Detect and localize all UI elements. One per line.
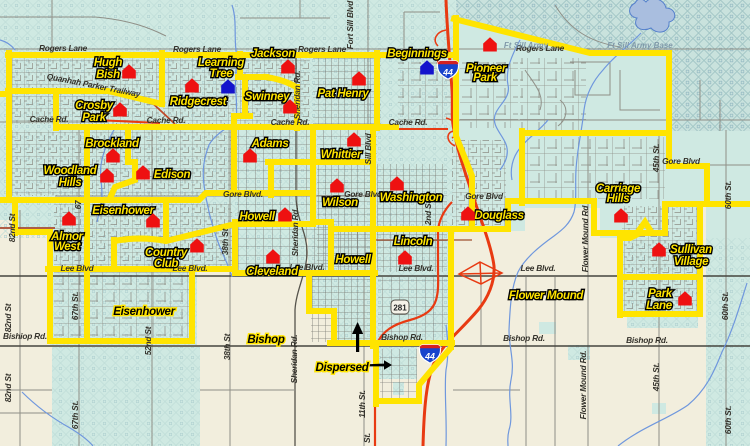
- svg-text:44: 44: [442, 68, 453, 78]
- svg-text:Gore Blvd: Gore Blvd: [465, 191, 504, 201]
- svg-text:Washington: Washington: [380, 192, 443, 204]
- svg-text:Rogers Lane: Rogers Lane: [173, 44, 222, 54]
- svg-text:Hills: Hills: [59, 177, 82, 189]
- svg-text:67th St.: 67th St.: [70, 292, 80, 320]
- svg-text:Lee Blvd: Lee Blvd: [61, 263, 95, 273]
- svg-text:Howell: Howell: [239, 211, 275, 223]
- svg-text:Cache Rd.: Cache Rd.: [389, 117, 428, 127]
- svg-text:Cache Rd.: Cache Rd.: [30, 114, 69, 124]
- svg-text:Lane: Lane: [646, 300, 673, 312]
- svg-text:Fort Sill Blvd: Fort Sill Blvd: [345, 0, 355, 49]
- svg-text:Park: Park: [648, 288, 673, 300]
- svg-text:Wilson: Wilson: [322, 197, 358, 209]
- svg-text:Rogers Lane: Rogers Lane: [39, 43, 88, 53]
- svg-text:82nd St: 82nd St: [7, 212, 17, 242]
- svg-text:Gore Blvd: Gore Blvd: [662, 156, 701, 166]
- svg-text:Crosby: Crosby: [75, 100, 114, 112]
- svg-text:45th St.: 45th St.: [651, 363, 661, 392]
- svg-text:Park: Park: [82, 112, 107, 124]
- svg-text:60th St.: 60th St.: [723, 181, 733, 209]
- svg-text:82nd St: 82nd St: [3, 372, 13, 402]
- svg-text:Ft Sill Army Base: Ft Sill Army Base: [607, 41, 673, 50]
- svg-text:60th St.: 60th St.: [723, 406, 733, 434]
- svg-text:Tree: Tree: [210, 68, 234, 80]
- svg-text:Bishop: Bishop: [247, 334, 284, 346]
- svg-text:Gore Blvd.: Gore Blvd.: [223, 189, 263, 199]
- svg-text:Lincoln: Lincoln: [394, 236, 433, 248]
- svg-text:Pat Henry: Pat Henry: [318, 88, 370, 100]
- svg-text:Sill Blvd: Sill Blvd: [363, 132, 373, 164]
- svg-text:Whittier: Whittier: [321, 149, 362, 161]
- svg-text:Brockland: Brockland: [85, 138, 140, 150]
- svg-text:Howell: Howell: [335, 254, 371, 266]
- svg-text:Flower Mound Rd: Flower Mound Rd: [580, 205, 590, 273]
- svg-text:Dispersed: Dispersed: [316, 362, 370, 374]
- svg-text:Ft Sill Army: Ft Sill Army: [504, 41, 549, 50]
- svg-text:Club: Club: [154, 258, 179, 270]
- svg-text:Park: Park: [473, 72, 498, 84]
- svg-text:Eisenhower: Eisenhower: [92, 205, 154, 217]
- svg-text:Cache Rd.: Cache Rd.: [147, 115, 186, 125]
- svg-text:West: West: [54, 241, 82, 253]
- svg-text:Woodland: Woodland: [44, 165, 98, 177]
- svg-text:Bish: Bish: [96, 69, 120, 81]
- svg-text:Jackson: Jackson: [251, 48, 295, 60]
- svg-text:Rogers Lane: Rogers Lane: [298, 44, 347, 54]
- svg-text:Lee Blvd.: Lee Blvd.: [520, 263, 555, 273]
- svg-text:11th St.: 11th St.: [357, 390, 367, 418]
- svg-text:Ridgecrest: Ridgecrest: [170, 96, 228, 108]
- svg-text:Swinney: Swinney: [245, 91, 290, 103]
- svg-text:Flower Mound Rd.: Flower Mound Rd.: [578, 351, 588, 420]
- svg-text:38th St: 38th St: [222, 332, 232, 360]
- svg-text:Cleveland: Cleveland: [246, 266, 299, 278]
- svg-text:Douglass: Douglass: [474, 210, 523, 222]
- svg-text:Sullivan: Sullivan: [670, 244, 712, 256]
- svg-text:Bishop Rd.: Bishop Rd.: [381, 332, 423, 342]
- svg-text:45th St.: 45th St.: [651, 144, 661, 173]
- svg-text:67th St.: 67th St.: [70, 401, 80, 429]
- svg-text:44: 44: [424, 352, 435, 362]
- svg-text:Sheridan Rd.: Sheridan Rd.: [289, 335, 299, 384]
- svg-text:St.: St.: [362, 433, 372, 443]
- svg-text:Bishop Rd.: Bishop Rd.: [626, 335, 668, 345]
- svg-text:Village: Village: [674, 256, 709, 268]
- svg-text:38th St: 38th St: [220, 227, 230, 255]
- svg-text:67: 67: [73, 200, 83, 209]
- svg-text:52nd St: 52nd St: [143, 325, 153, 355]
- svg-text:Beginnings: Beginnings: [387, 48, 447, 60]
- svg-text:60th St.: 60th St.: [720, 292, 730, 320]
- svg-text:Hugh: Hugh: [94, 57, 122, 69]
- svg-text:82nd St: 82nd St: [3, 302, 13, 332]
- svg-text:Cache Rd.: Cache Rd.: [271, 117, 310, 127]
- svg-text:Edison: Edison: [154, 169, 191, 181]
- svg-text:281: 281: [393, 304, 407, 313]
- svg-text:Adams: Adams: [251, 138, 289, 150]
- svg-text:Eisenhower: Eisenhower: [113, 306, 175, 318]
- svg-text:Hills: Hills: [607, 193, 630, 205]
- svg-text:Bishop Rd.: Bishop Rd.: [503, 333, 545, 343]
- svg-text:Flower Mound: Flower Mound: [509, 290, 585, 302]
